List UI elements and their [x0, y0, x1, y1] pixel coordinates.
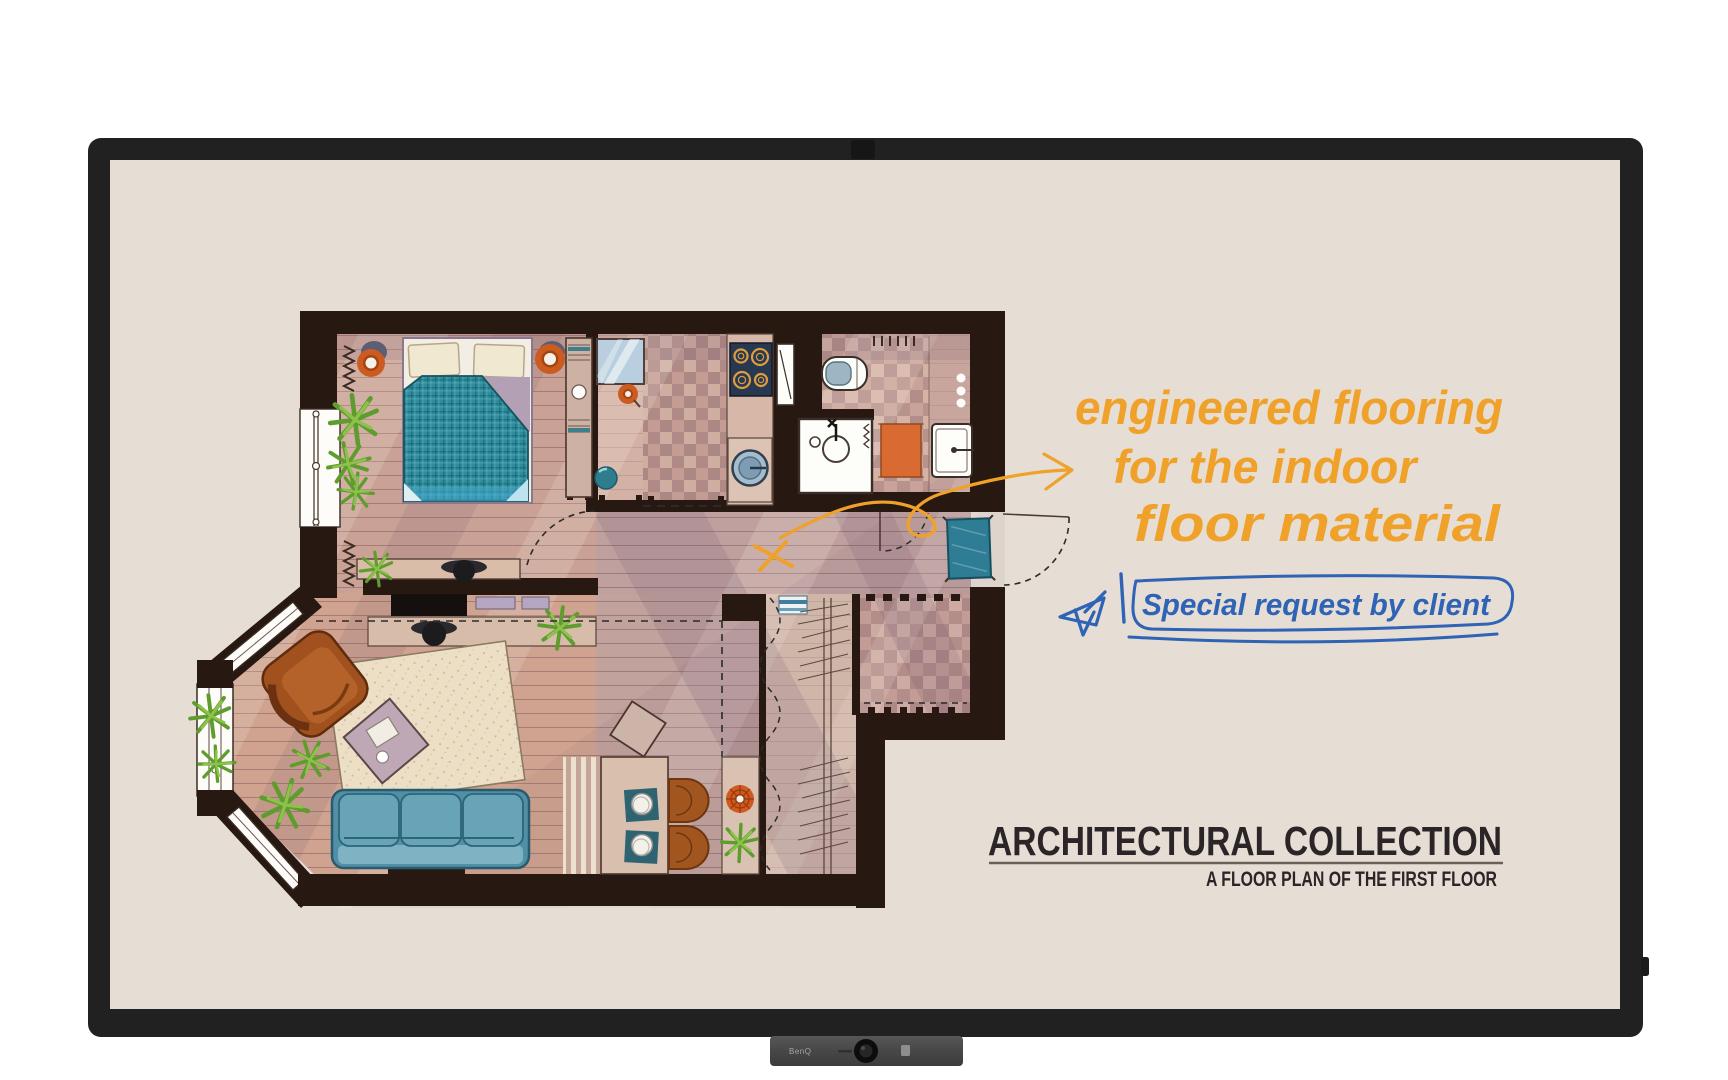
svg-text:for the indoor: for the indoor: [1114, 440, 1420, 493]
svg-text:floor material: floor material: [1134, 495, 1502, 552]
svg-text:BenQ: BenQ: [789, 1047, 811, 1056]
svg-text:A FLOOR PLAN OF THE FIRST FLOO: A FLOOR PLAN OF THE FIRST FLOOR: [1206, 867, 1497, 891]
svg-text:Special request by client: Special request by client: [1142, 587, 1492, 622]
svg-text:ARCHITECTURAL COLLECTION: ARCHITECTURAL COLLECTION: [988, 818, 1502, 864]
svg-text:engineered flooring: engineered flooring: [1075, 381, 1503, 434]
